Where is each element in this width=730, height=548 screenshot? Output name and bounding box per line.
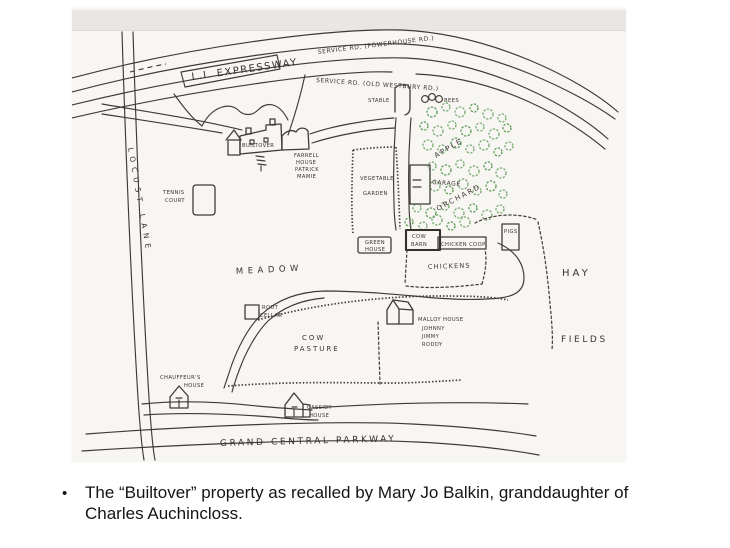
- garage-building: [410, 165, 430, 204]
- orchard-tree: [466, 145, 474, 153]
- label-malloy-3: JIMMY: [421, 334, 440, 340]
- label-cassidy-2: HOUSE: [309, 413, 329, 419]
- orchard-tree: [441, 165, 451, 175]
- label-malloy-2: JOHNNY: [421, 326, 445, 332]
- orchard-tree: [469, 204, 477, 212]
- orchard-tree: [503, 124, 511, 132]
- label-farrell-4: MAMIE: [297, 174, 316, 180]
- orchard-tree: [455, 107, 465, 117]
- label-root-cellar-2: CELLAR: [260, 313, 282, 319]
- property-map-drawing: L.I. EXPRESSWAY SERVICE RD. (POWERHOUSE …: [72, 8, 626, 462]
- orchard-tree: [432, 215, 442, 225]
- label-farrell-3: PATRICK: [295, 167, 319, 173]
- label-malloy-1: MALLOY HOUSE: [418, 317, 463, 323]
- orchard-tree: [496, 205, 504, 213]
- road-label-service-rd-old-westbury: SERVICE RD. (OLD WESTBURY RD.): [316, 77, 439, 93]
- orchard-tree: [476, 123, 484, 131]
- road-dash-mark: [130, 64, 166, 72]
- orchard-tree: [494, 148, 502, 156]
- farrell-house-building: [282, 128, 309, 150]
- label-pigs: PIGS: [504, 229, 518, 235]
- label-greenhouse-1: GREEN: [365, 240, 385, 246]
- label-farrell-2: HOUSE: [296, 160, 316, 166]
- label-fields: FIELDS: [561, 335, 608, 345]
- orchard-tree: [442, 103, 450, 111]
- orchard-tree: [486, 181, 496, 191]
- orchard-tree: [413, 204, 421, 212]
- orchard-tree: [426, 208, 436, 218]
- orchard-tree: [460, 217, 470, 227]
- caption-text: The “Builtover” property as recalled by …: [85, 482, 628, 524]
- orchard-tree: [470, 104, 478, 112]
- caption-bullet: •: [62, 482, 85, 524]
- label-root-cellar-1: ROUT: [262, 305, 279, 311]
- orchard-tree: [498, 114, 506, 122]
- orchard-tree: [461, 126, 471, 136]
- orchard-tree: [420, 122, 428, 130]
- label-meadow: MEADOW: [236, 263, 304, 277]
- label-tennis: TENNIS: [162, 190, 184, 196]
- root-cellar-shape: [245, 305, 259, 319]
- orchard-tree: [454, 208, 464, 218]
- orchard-tree: [427, 107, 437, 117]
- label-cow-barn-2: BARN: [411, 242, 427, 248]
- label-chauffeur-1: CHAUFFEUR'S: [160, 375, 201, 381]
- label-cow-pasture-1: COW: [302, 334, 325, 342]
- orchard-tree: [428, 162, 436, 170]
- label-cow-barn-1: COW: [412, 234, 426, 240]
- orchard-tree: [447, 222, 455, 230]
- orchard-tree: [484, 162, 492, 170]
- label-hay: HAY: [562, 268, 591, 279]
- bee-hives: [422, 94, 443, 103]
- orchard-trees: [405, 103, 513, 230]
- orchard-tree: [479, 140, 489, 150]
- label-garden: GARDEN: [363, 191, 388, 197]
- label-malloy-4: RODDY: [422, 342, 443, 348]
- orchard-tree: [505, 142, 513, 150]
- label-garage: GARAGE: [432, 179, 461, 188]
- farm-lane: [394, 118, 411, 230]
- bottom-farm-roads: [142, 402, 528, 420]
- malloy-house-building: [387, 300, 413, 324]
- orchard-tree: [496, 168, 506, 178]
- orchard-tree: [456, 160, 464, 168]
- hay-field-fence: [475, 215, 552, 350]
- caption-line-2: Charles Auchincloss.: [85, 503, 628, 524]
- label-chickens: CHICKENS: [428, 262, 471, 271]
- scanned-map-image: L.I. EXPRESSWAY SERVICE RD. (POWERHOUSE …: [72, 8, 626, 462]
- label-cassidy-1: CASSIDY: [307, 405, 332, 411]
- label-greenhouse-2: HOUSE: [365, 247, 385, 253]
- orchard-tree: [405, 218, 413, 226]
- label-stable: STABLE: [368, 98, 390, 104]
- slide-caption: • The “Builtover” property as recalled b…: [62, 482, 710, 524]
- orchard-tree: [448, 121, 456, 129]
- caption-line-1: The “Builtover” property as recalled by …: [85, 482, 628, 503]
- orchard-tree: [423, 140, 433, 150]
- orchard-tree: [499, 190, 507, 198]
- orchard-tree: [483, 109, 493, 119]
- chauffeur-house-building: [170, 386, 188, 408]
- label-chicken-coop: CHICKEN COOP: [441, 242, 486, 248]
- label-chauffeur-2: HOUSE: [184, 383, 204, 389]
- tennis-court-shape: [193, 185, 215, 215]
- label-cow-pasture-2: PASTURE: [294, 345, 340, 353]
- label-builtover: BUILTOVER: [242, 143, 274, 149]
- orchard-tree: [489, 129, 499, 139]
- orchard-tree: [419, 222, 427, 230]
- label-farrell-1: FARRELL: [294, 153, 319, 159]
- orchard-tree: [433, 126, 443, 136]
- label-court: COURT: [165, 198, 185, 204]
- label-vegetable: VEGETABLE: [360, 176, 394, 182]
- road-label-grand-central-parkway: GRAND CENTRAL PARKWAY: [220, 434, 397, 449]
- orchard-tree: [469, 166, 479, 176]
